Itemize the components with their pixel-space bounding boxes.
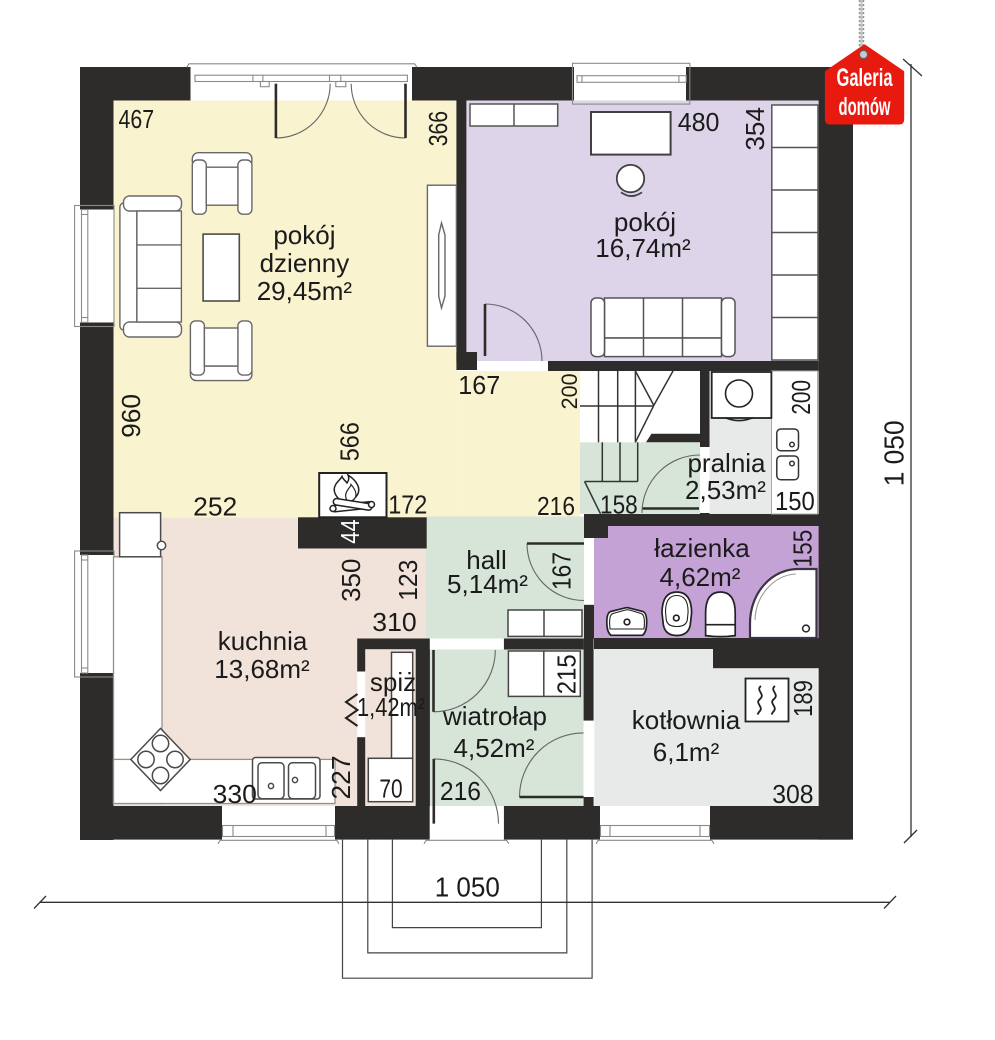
svg-text:pralnia: pralnia <box>687 448 766 478</box>
svg-text:167: 167 <box>458 370 500 400</box>
svg-text:kotłownia: kotłownia <box>632 705 741 735</box>
svg-text:167: 167 <box>547 552 577 590</box>
svg-text:172: 172 <box>388 490 427 520</box>
svg-text:150: 150 <box>775 486 815 516</box>
svg-text:158: 158 <box>600 490 638 520</box>
svg-text:330: 330 <box>213 779 257 809</box>
svg-text:kuchnia: kuchnia <box>218 626 308 656</box>
svg-text:1,42m²: 1,42m² <box>357 692 425 722</box>
svg-text:Galeria: Galeria <box>837 64 894 92</box>
svg-text:pokój: pokój <box>273 220 335 250</box>
svg-text:wiatrołap: wiatrołap <box>442 701 547 731</box>
svg-text:dzienny: dzienny <box>260 248 350 278</box>
svg-text:1 050: 1 050 <box>435 872 500 903</box>
svg-text:467: 467 <box>119 104 155 134</box>
svg-text:216: 216 <box>440 776 481 806</box>
svg-text:6,1m²: 6,1m² <box>653 737 720 767</box>
svg-text:216: 216 <box>537 491 575 521</box>
svg-text:5,14m²: 5,14m² <box>447 569 528 599</box>
svg-text:354: 354 <box>740 107 770 151</box>
svg-text:4,52m²: 4,52m² <box>454 733 535 763</box>
svg-text:29,45m²: 29,45m² <box>257 276 353 306</box>
svg-text:310: 310 <box>372 607 416 637</box>
svg-text:44: 44 <box>335 519 365 543</box>
svg-text:123: 123 <box>393 560 423 601</box>
svg-text:308: 308 <box>772 779 813 809</box>
svg-text:1 050: 1 050 <box>879 420 910 486</box>
svg-text:domów: domów <box>839 93 891 121</box>
svg-text:189: 189 <box>788 680 818 717</box>
svg-text:350: 350 <box>336 559 366 602</box>
svg-text:łazienka: łazienka <box>654 533 750 563</box>
svg-text:155: 155 <box>788 530 818 568</box>
svg-text:252: 252 <box>193 492 237 522</box>
svg-text:70: 70 <box>379 774 402 804</box>
svg-text:480: 480 <box>678 107 720 137</box>
svg-text:2,53m²: 2,53m² <box>685 475 766 505</box>
svg-text:13,68m²: 13,68m² <box>214 654 310 684</box>
svg-text:16,74m²: 16,74m² <box>595 233 691 263</box>
svg-text:4,62m²: 4,62m² <box>660 562 741 592</box>
svg-text:215: 215 <box>552 654 582 694</box>
svg-text:227: 227 <box>326 756 356 800</box>
svg-text:200: 200 <box>786 380 816 415</box>
svg-text:566: 566 <box>335 422 365 461</box>
svg-text:960: 960 <box>116 394 146 438</box>
svg-text:366: 366 <box>423 111 453 146</box>
svg-text:200: 200 <box>557 373 582 409</box>
